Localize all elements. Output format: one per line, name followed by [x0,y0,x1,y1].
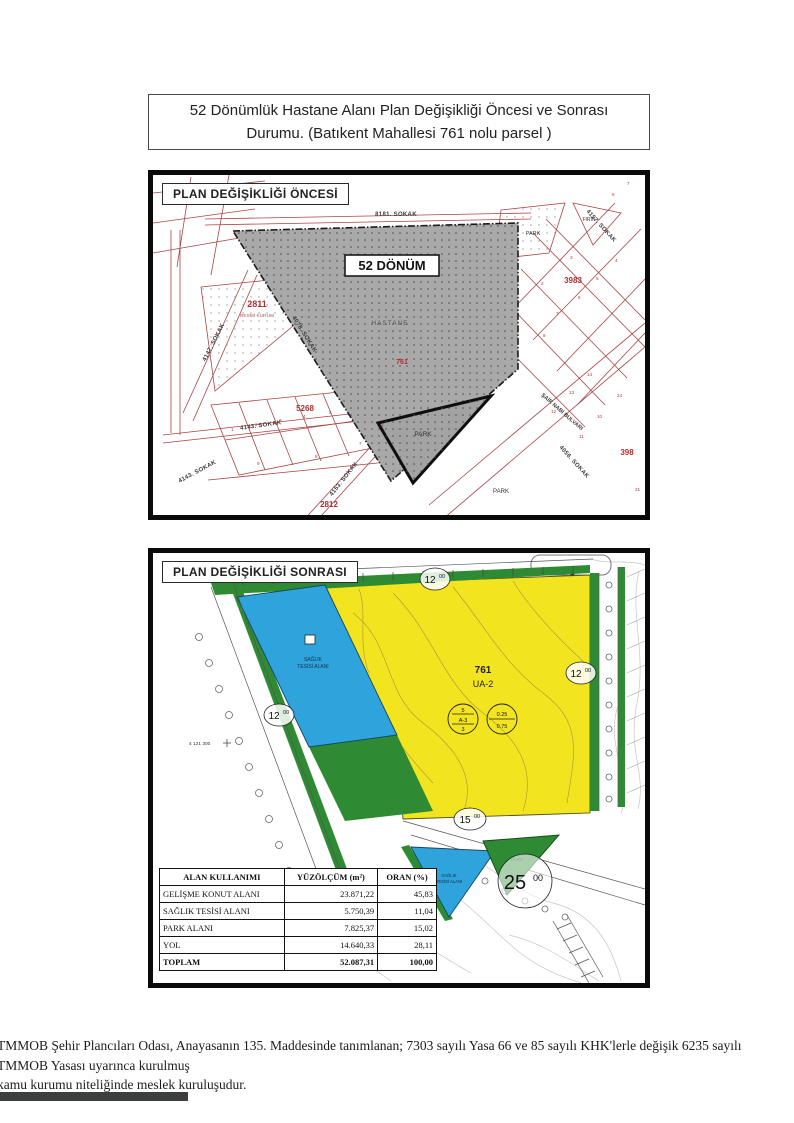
lot-number: 6 [381,423,384,428]
col-header-use: ALAN KULLANIMI [160,869,285,886]
parcel-761-label: 761 [396,359,408,366]
road-width-value: 12 [268,711,280,722]
street-sair-nabi: ŞAİR NABİ BULVARI [540,392,585,433]
row-ratio: 45,83 [378,886,437,903]
road-width-sup: 00 [533,873,543,883]
map-before-canvas: 52 DÖNÜM HASTANE 761 PARK 8181. SOKAK 41… [153,175,645,515]
parcel-5268: 5268 [296,404,314,413]
lot-number: 21 [635,487,641,492]
lot-number: 3 [570,255,573,260]
lot-number: 7 [627,181,630,186]
hastane-label: HASTANE [371,320,408,327]
col-header-area: YÜZÖLÇÜM (m²) [284,869,377,886]
row-label: SAĞLIK TESİSİ ALANI [160,903,285,920]
map-after: SAĞLIK TESİSİ ALANI [148,548,650,988]
row-label: PARK ALANI [160,920,285,937]
road-width-sup: 00 [585,668,591,674]
row-ratio: 28,11 [378,937,437,954]
parcel-2811: 2811 [247,299,267,309]
lot-number: 2 [541,281,544,286]
road-width-sup: 00 [439,574,445,580]
road-width-12-top: 12 00 [420,568,450,590]
health-triangle-label-2: TESİSİ ALANI [436,879,462,884]
street-8181: 8181. SOKAK [375,212,417,218]
table-row: YOL 14.640,33 28,11 [160,937,437,954]
map-before: 52 DÖNÜM HASTANE 761 PARK 8181. SOKAK 41… [148,170,650,520]
lot-number: 7 [556,311,559,316]
row-label: TOPLAM [160,954,285,971]
row-area: 52.087,31 [284,954,377,971]
health-label-2: TESİSİ ALANI [297,663,328,670]
parcel-398: 398 [620,448,634,457]
street-4157: 4157. SOKAK [585,209,618,244]
row-area: 5.750,39 [284,903,377,920]
lot-number: 5 [596,276,599,281]
lot-number: 3 [279,418,282,423]
lot-number: 5 [329,410,332,415]
landuse-table: ALAN KULLANIMI YÜZÖLÇÜM (m²) ORAN (%) GE… [159,868,437,971]
row-area: 14.640,33 [284,937,377,954]
zone-ua2-label: UA-2 [473,679,494,689]
page-title: 52 Dönümlük Hastane Alanı Plan Değişikli… [148,94,650,150]
park-label-topright: PARK [526,231,541,237]
road-width-25: 25 00 [498,854,552,908]
zoning-a-mid: A-3 [459,718,468,724]
road-width-sup: 00 [474,814,480,820]
park-label-bottomright: PARK [493,489,509,495]
street-4056: 4056. SOKAK [558,445,591,480]
lot-number: 8 [315,454,318,459]
table-row: SAĞLIK TESİSİ ALANI 5.750,39 11,04 [160,903,437,920]
zoning-b-bottom: 0.75 [497,724,508,730]
lot-number: 2 [255,422,258,427]
parcel-3983: 3983 [564,276,582,285]
health-label-1: SAĞLIK [304,656,323,663]
row-area: 23.871,22 [284,886,377,903]
row-area: 7.825,37 [284,920,377,937]
col-header-ratio: ORAN (%) [378,869,437,886]
row-ratio: 15,02 [378,920,437,937]
lot-number: 24 [617,393,623,398]
firin-label: FIRIN [582,217,595,223]
map-before-header: PLAN DEĞİŞİKLİĞİ ÖNCESİ [162,183,349,205]
lot-number: 12 [551,409,557,414]
parcel-2812: 2812 [320,500,338,509]
zoning-a-top: 5 [461,708,464,714]
park-label-center: PARK [414,431,432,438]
lot-number: 6 [612,192,615,197]
footer-line-1: TMMOB Şehir Plancıları Odası, Anayasanın… [0,1036,794,1075]
road-width-sup: 00 [283,710,289,716]
row-ratio: 100,00 [378,954,437,971]
road-width-15: 15 00 [454,808,486,830]
lot-number: 4 [615,258,618,263]
parcel-761-label: 761 [475,665,492,676]
lot-number: 14 [587,372,593,377]
lot-number: 10 [597,414,603,419]
table-row: PARK ALANI 7.825,37 15,02 [160,920,437,937]
zoning-b-top: 0.25 [497,712,508,718]
lot-number: 6 [578,295,581,300]
lot-number: 9 [257,461,260,466]
park-strip-right-b [618,567,625,807]
footer-note: TMMOB Şehir Plancıları Odası, Anayasanın… [0,1036,794,1095]
road-width-value: 15 [459,815,471,826]
zoning-a-bottom: 3 [461,727,464,733]
table-row: GELİŞME KONUT ALANI 23.871,22 45,83 [160,886,437,903]
road-width-12-left: 12 00 [264,704,294,726]
lot-number: 1 [231,427,234,432]
table-header-row: ALAN KULLANIMI YÜZÖLÇÜM (m²) ORAN (%) [160,869,437,886]
road-width-value: 25 [504,872,526,894]
health-triangle-label-1: SAĞLIK [441,873,456,878]
road-width-value: 12 [424,575,436,586]
resmi-kurum-label: RESMİ KURUM [240,312,274,319]
row-label: YOL [160,937,285,954]
row-ratio: 11,04 [378,903,437,920]
facility-symbol [305,635,315,644]
grid-coordinate-label: 4 121 300 [189,741,211,747]
lot-number: 8 [543,333,546,338]
document-page: 52 Dönümlük Hastane Alanı Plan Değişikli… [0,0,794,1123]
lot-number: 7 [359,441,362,446]
donum-label: 52 DÖNÜM [358,258,425,273]
map-after-header: PLAN DEĞİŞİKLİĞİ SONRASI [162,561,358,583]
lot-number: 13 [569,390,575,395]
grid-cross-icon [223,739,231,747]
scan-artifact-bar [0,1092,188,1101]
road-width-value: 12 [570,669,582,680]
road-width-12-right: 12 00 [566,662,596,684]
street-4143-b: 4143. SOKAK [178,460,218,485]
park-strip-right-a [590,573,599,811]
lot-number: 11 [579,434,584,439]
lot-number: 4 [303,414,306,419]
row-label: GELİŞME KONUT ALANI [160,886,285,903]
table-total-row: TOPLAM 52.087,31 100,00 [160,954,437,971]
